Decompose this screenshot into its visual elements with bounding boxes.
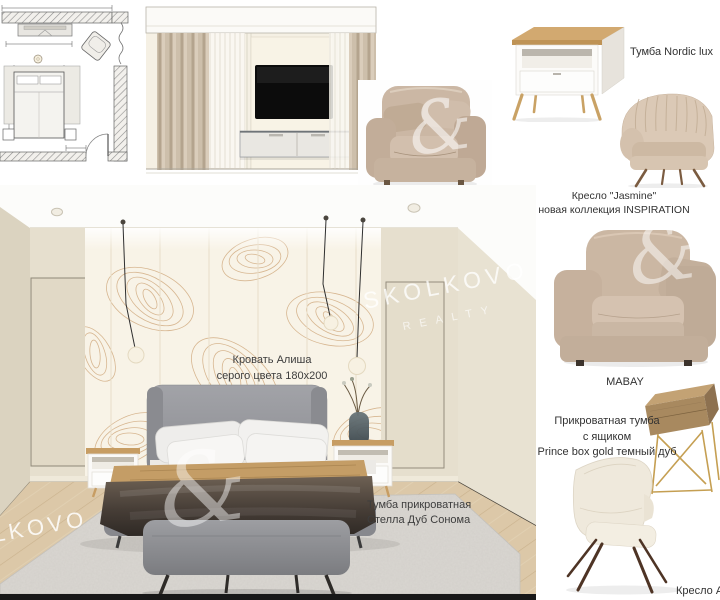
label-nordic: Тумба Nordic lux [630,44,713,60]
label-prince: Прикроватная тумба с ящиком Prince box g… [522,414,692,461]
jasmine-armchair-photo [612,86,720,188]
plan-door [86,134,108,156]
label-kreslo-a-text: Кресло А [676,585,720,597]
label-mabay: MABAY [585,374,665,390]
armchair-photo-top [358,80,492,192]
label-stella-line1: Тумба прикроватная [367,498,471,513]
cream-chair-photo [540,448,692,598]
label-prince-line2: с ящиком [522,430,692,446]
label-bed: Кровать Алиша серого цвета 180x200 [196,352,348,384]
label-stella-line2: Стелла Дуб Сонома [367,513,471,528]
label-jasmine-line2: новая коллекция INSPIRATION [533,203,695,217]
cream-chair [568,458,666,592]
photo-bottom-bar [0,594,536,600]
cornice [146,7,376,33]
label-jasmine-line1: Кресло "Jasmine" [533,189,695,203]
label-bed-line1: Кровать Алиша [196,352,348,368]
label-mabay-text: MABAY [606,376,644,388]
curtain-left [157,33,209,170]
plan-bed [4,66,80,138]
left-wall [0,207,30,516]
mabay-armchair-photo [548,220,720,372]
tv-screen [255,65,333,119]
plan-window [119,23,123,64]
label-jasmine: Кресло "Jasmine" новая коллекция INSPIRA… [533,189,695,217]
jasmine-armchair [620,94,714,186]
label-prince-line3: Prince box gold темный дуб [522,445,692,461]
label-stella: Тумба прикроватная Стелла Дуб Сонома [367,498,471,528]
beige-armchair [366,86,486,185]
bedroom-render [0,184,536,600]
plan-ceiling-light [34,55,42,63]
label-kreslo-a: Кресло А [676,583,720,599]
tv-wall-elevation [143,4,379,176]
label-nordic-text: Тумба Nordic lux [630,46,713,58]
nordic-nightstand [512,27,624,119]
right-door-outline [386,282,444,468]
plan-tv-cabinet [18,24,72,36]
label-prince-line1: Прикроватная тумба [522,414,692,430]
left-door-outline [31,278,93,466]
plan-armchair [81,31,112,62]
label-bed-line2: серого цвета 180x200 [196,368,348,384]
mood-board: Тумба Nordic lux Кресло "Jasmine" новая … [0,0,720,600]
floor-plan [0,2,150,180]
